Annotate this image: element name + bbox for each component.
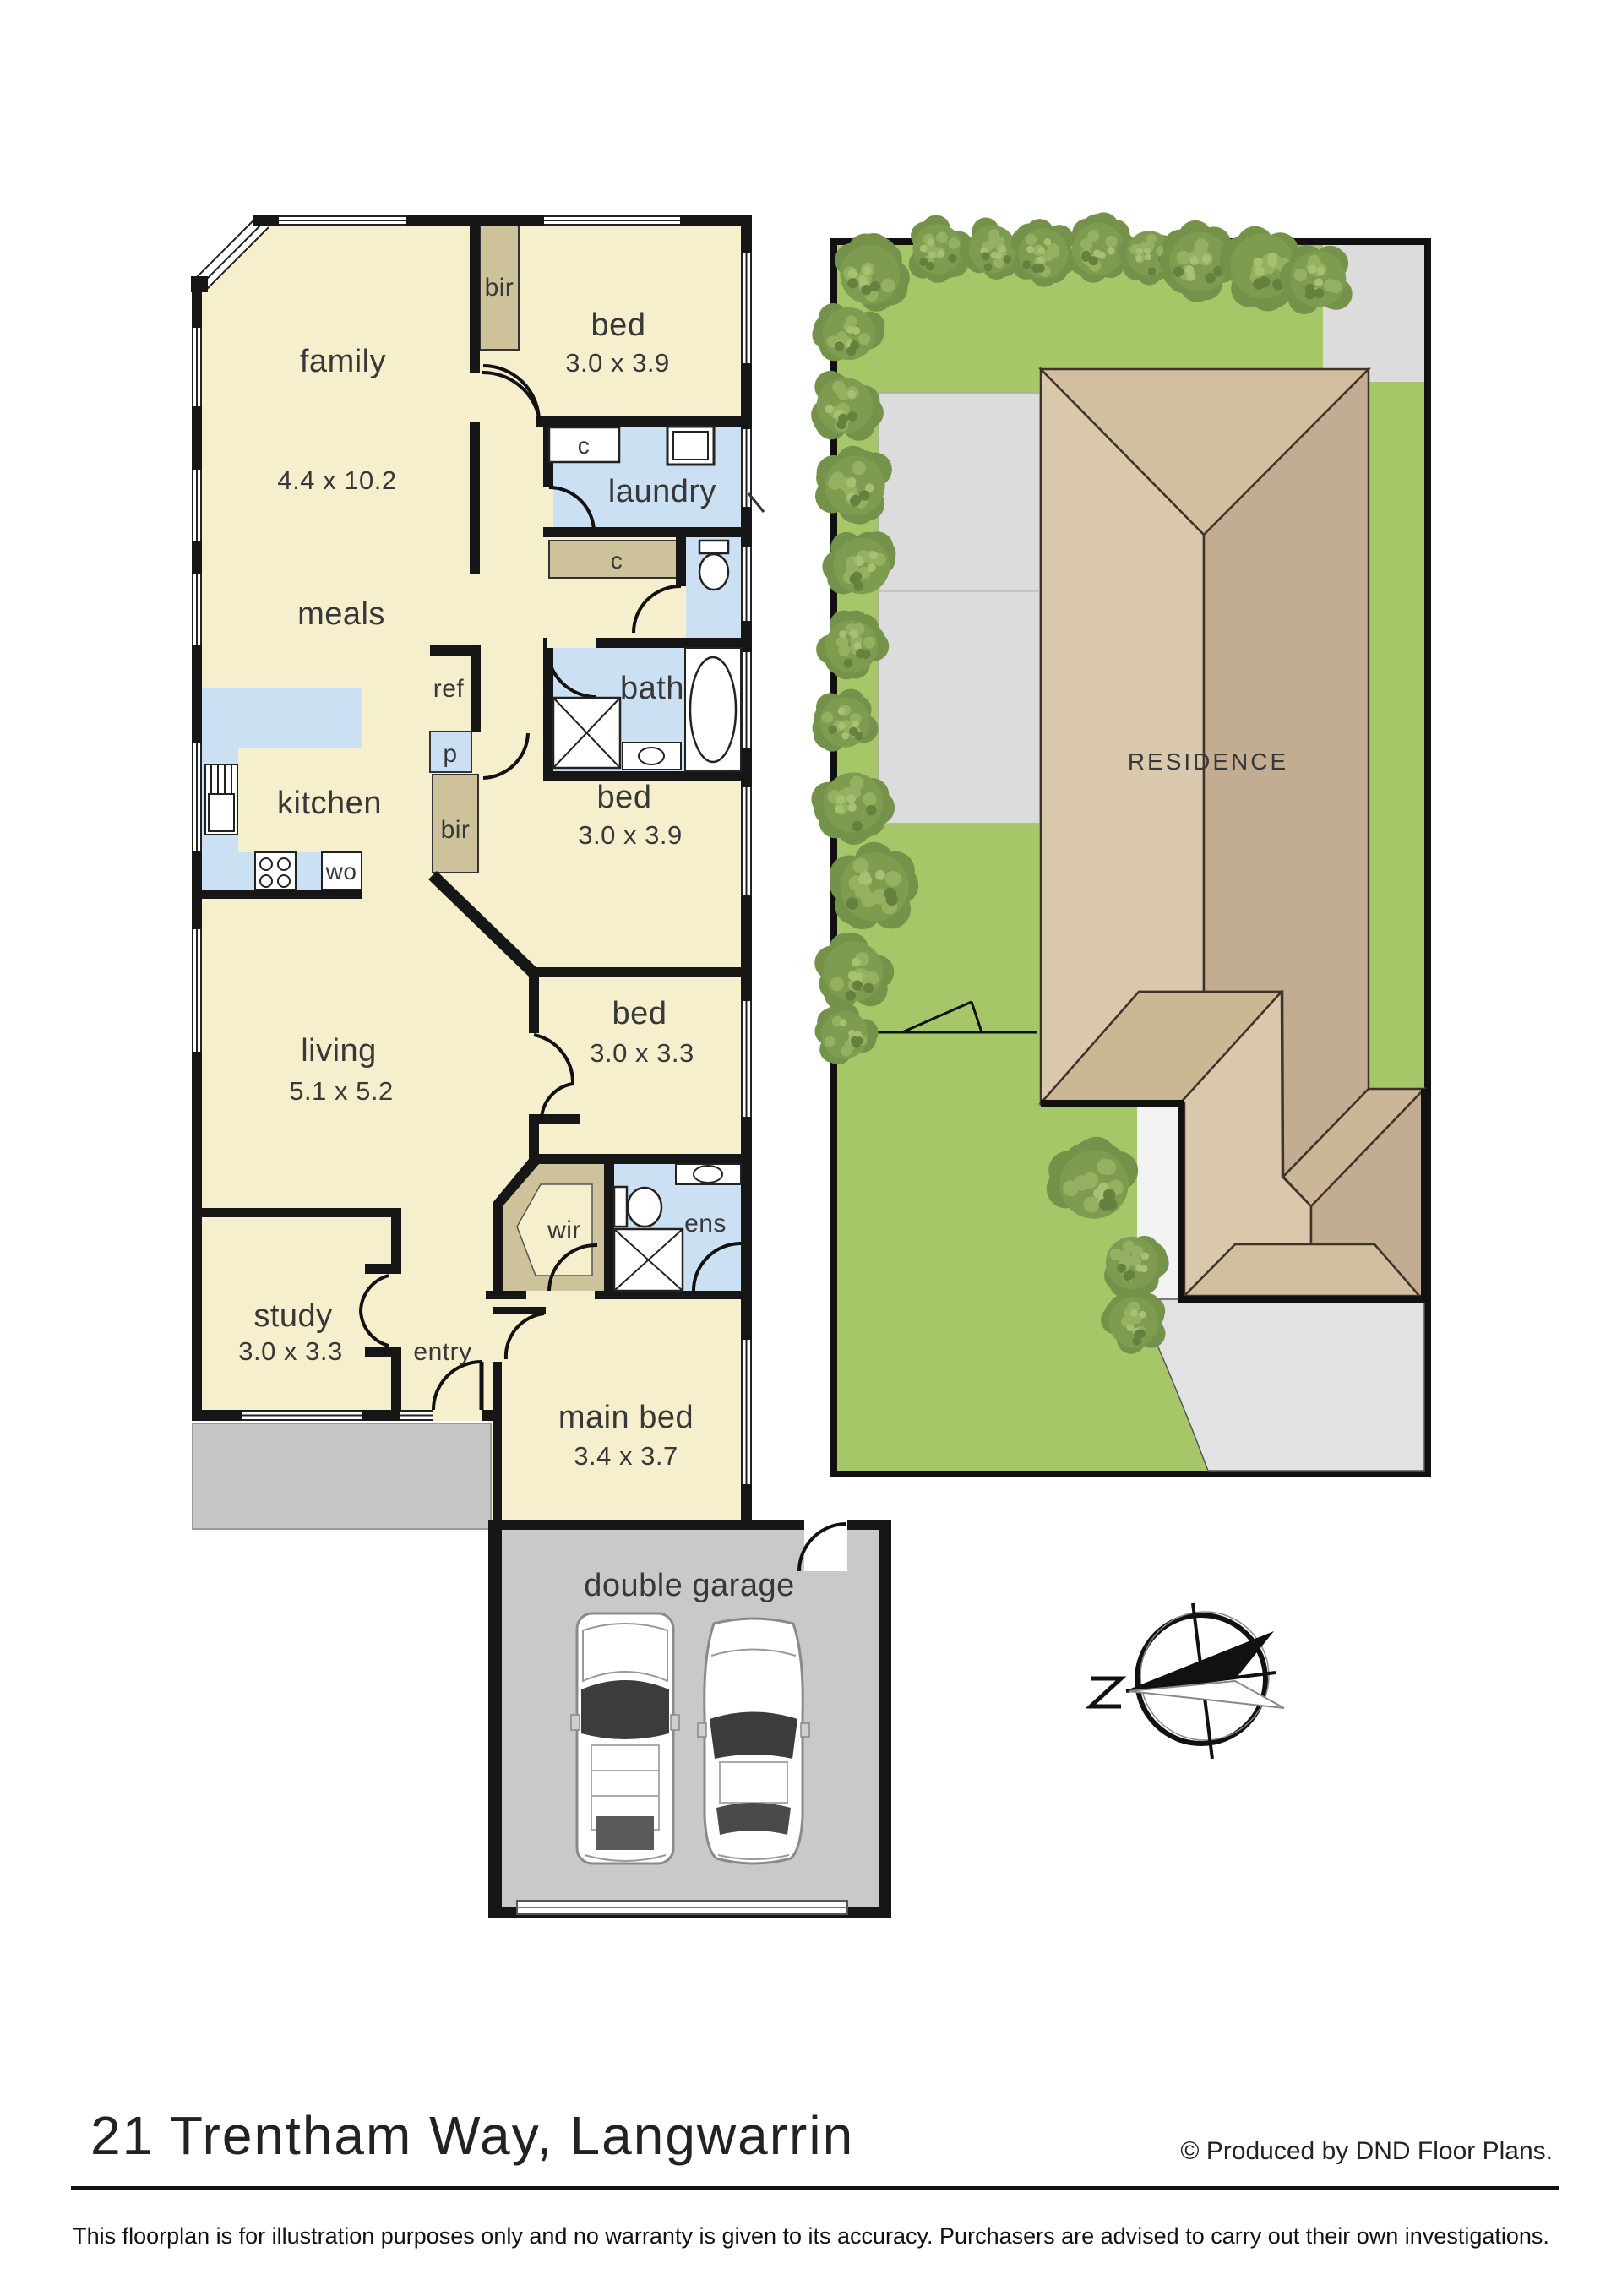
svg-text:3.0 x 3.3: 3.0 x 3.3 — [238, 1336, 342, 1366]
svg-text:RESIDENCE: RESIDENCE — [1128, 748, 1288, 775]
svg-text:bed: bed — [612, 996, 667, 1031]
svg-text:main bed: main bed — [558, 1400, 694, 1435]
svg-text:bed: bed — [591, 307, 646, 343]
svg-text:3.0 x 3.3: 3.0 x 3.3 — [590, 1038, 694, 1068]
svg-text:bed: bed — [597, 780, 652, 815]
svg-text:c: c — [578, 433, 591, 459]
svg-text:This floorplan is for illustra: This floorplan is for illustration purpo… — [73, 2223, 1549, 2249]
svg-text:kitchen: kitchen — [277, 786, 382, 821]
svg-text:3.0 x 3.9: 3.0 x 3.9 — [565, 348, 669, 378]
svg-text:p: p — [443, 740, 457, 768]
svg-text:meals: meals — [297, 596, 385, 632]
svg-text:© Produced by DND Floor Plans.: © Produced by DND Floor Plans. — [1180, 2137, 1553, 2165]
svg-text:5.1 x 5.2: 5.1 x 5.2 — [289, 1076, 393, 1106]
svg-text:3.4 x 3.7: 3.4 x 3.7 — [574, 1441, 678, 1471]
svg-text:study: study — [253, 1298, 332, 1334]
svg-text:4.4 x 10.2: 4.4 x 10.2 — [277, 465, 396, 495]
svg-text:ref: ref — [433, 675, 465, 703]
svg-text:bir: bir — [441, 816, 471, 844]
svg-text:living: living — [301, 1033, 377, 1069]
svg-text:bath: bath — [620, 671, 684, 706]
svg-text:double garage: double garage — [584, 1568, 795, 1603]
svg-text:bir: bir — [485, 274, 514, 302]
svg-text:family: family — [300, 344, 386, 379]
svg-text:21 Trentham Way, Langwarrin: 21 Trentham Way, Langwarrin — [90, 2105, 854, 2166]
svg-text:entry: entry — [413, 1338, 471, 1366]
svg-text:wir: wir — [547, 1216, 581, 1244]
svg-text:wo: wo — [325, 858, 357, 884]
svg-text:laundry: laundry — [608, 474, 716, 509]
svg-text:c: c — [611, 547, 623, 574]
svg-text:ens: ens — [684, 1210, 727, 1238]
svg-text:3.0 x 3.9: 3.0 x 3.9 — [578, 820, 682, 850]
